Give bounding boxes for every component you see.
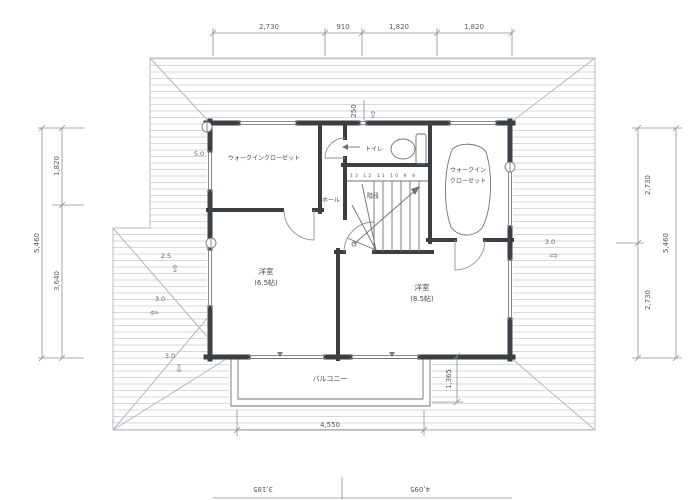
balcony-label: バルコニー <box>313 375 348 383</box>
dim-bottom-left: 3,185 <box>253 485 273 493</box>
bedroom-right-size: (8.5帖) <box>410 294 434 303</box>
dim-balcony-depth: 1,365 <box>445 369 453 389</box>
pitch-arrow-left-icon: ⇦ <box>150 308 158 319</box>
floor-plan-drawing: バルコニー <box>0 0 700 500</box>
hall-label: ホール <box>322 197 340 204</box>
dim-right-total: 5,460 <box>662 233 670 253</box>
bedroom-left-name: 洋室 <box>259 266 274 276</box>
dimension-right: 2,730 2,730 5,460 <box>616 125 682 361</box>
pitch-left-mid: 3.0 <box>155 295 165 303</box>
dim-top-2: 910 <box>336 23 349 31</box>
wic-right-label-2: クローゼット <box>450 177 486 185</box>
dimension-left: 5,460 1,820 3,640 <box>33 125 84 361</box>
wic-left-label: ウォークインクローゼット <box>228 154 300 162</box>
wic-right-label-1: ウォークイン <box>450 166 486 174</box>
dim-top-4: 1,820 <box>464 23 484 31</box>
dim-right-seg-1: 2,730 <box>644 175 652 195</box>
stairs-label: 階段 <box>367 192 379 200</box>
pitch-arrow-down-icon: ⇩ <box>175 364 183 375</box>
floor-plan-canvas: バルコニー <box>0 0 700 500</box>
stair-step-numbers: 13 12 11 10 9 8 <box>350 173 416 179</box>
small-arrow-up-icon: ⇧ <box>369 110 377 121</box>
pitch-top-left: 5.0 <box>194 150 204 158</box>
dimension-top: 2,730 910 1,820 1,820 <box>210 23 515 56</box>
pitch-left-bottom: 3.0 <box>165 352 175 360</box>
pitch-arrow-right-icon: ⇨ <box>550 251 558 262</box>
dim-right-seg-2: 2,730 <box>644 290 652 310</box>
bedroom-right-name: 洋室 <box>415 282 430 292</box>
dim-top-3: 1,820 <box>389 23 409 31</box>
dim-left-seg-2: 3,640 <box>53 271 61 291</box>
dim-top-1: 2,730 <box>259 23 279 31</box>
dim-balcony-width: 4,550 <box>320 421 340 429</box>
toilet-label: トイレ <box>365 146 383 153</box>
dim-small-top: 250 <box>350 104 358 117</box>
pitch-arrow-up-icon: ⇧ <box>171 264 179 275</box>
pitch-right: 3.0 <box>545 238 555 246</box>
pitch-left-top: 2.5 <box>161 252 171 260</box>
dimension-bottom: 3,185 4,095 <box>213 477 512 499</box>
dim-bottom-right: 4,095 <box>410 485 430 493</box>
dim-left-seg-1: 1,820 <box>53 156 61 176</box>
dim-left-total: 5,460 <box>33 233 41 253</box>
bedroom-left-size: (6.5帖) <box>254 278 278 287</box>
